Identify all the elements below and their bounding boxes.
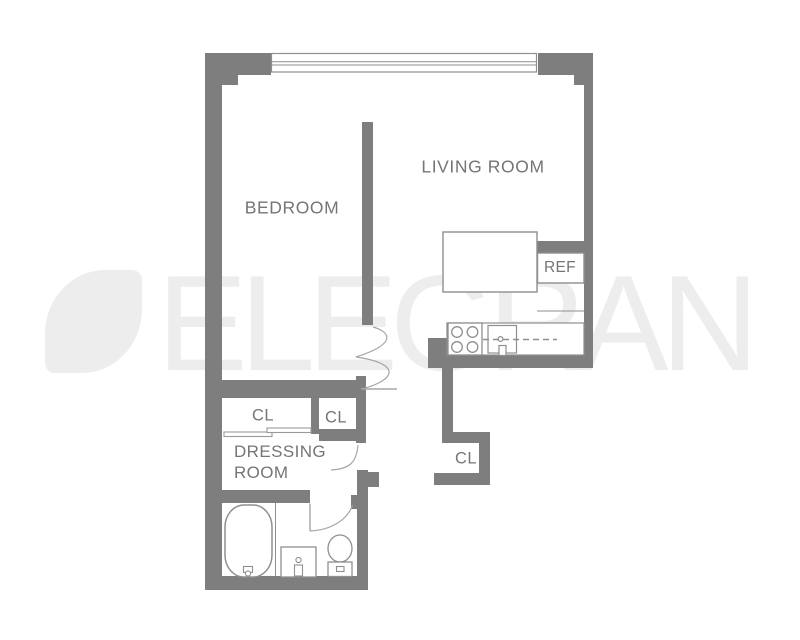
right-wall <box>584 85 593 368</box>
window <box>272 54 537 73</box>
kitchen-sink-icon <box>488 326 517 356</box>
left-wall <box>205 53 222 590</box>
top-right-step-wall <box>574 75 593 85</box>
closet-right-bottom-wall <box>319 429 366 441</box>
kitchen-island-counter <box>443 232 537 292</box>
bathroom-door-arc <box>310 505 353 531</box>
dressing-room-door-arc <box>331 445 358 470</box>
closet-left-label: CL <box>252 407 274 426</box>
sliding-door-panel-left <box>224 432 272 437</box>
bathroom-top-wall <box>218 490 310 503</box>
closet-right-label: CL <box>325 409 347 428</box>
wall-above-refrigerator <box>537 241 584 253</box>
foyer-wall-stub <box>365 472 379 487</box>
kitchen-left-wall-stub <box>428 338 448 357</box>
top-left-step-wall <box>221 75 238 85</box>
floorplan-canvas: ELEGRAN <box>0 0 800 640</box>
bedroom-living-partition-wall <box>362 122 373 325</box>
closet-hall-label: CL <box>455 450 477 469</box>
floorplan-drawing <box>0 0 800 640</box>
refrigerator-label: REF <box>544 259 576 277</box>
closet-divider-wall <box>311 398 319 434</box>
bedroom-label: BEDROOM <box>245 198 340 219</box>
hall-wall <box>442 362 453 443</box>
hall-closet-bottom-wall <box>434 473 490 485</box>
closet-sliding-doors <box>224 428 311 437</box>
bedroom-bottom-wall <box>219 380 356 398</box>
top-right-corner-wall <box>538 53 593 75</box>
top-left-corner-wall <box>221 53 271 75</box>
toilet-icon <box>328 535 352 577</box>
bedroom-double-door-arc-upper <box>356 327 387 357</box>
sliding-door-panel-right <box>267 428 311 433</box>
bathroom-sink-icon <box>281 547 316 577</box>
living-room-label: LIVING ROOM <box>421 157 544 178</box>
bathtub-icon <box>225 505 272 577</box>
bottom-wall <box>205 576 368 590</box>
stove-icon <box>448 323 482 355</box>
bathroom <box>225 503 352 577</box>
dressing-room-label: DRESSING ROOM <box>234 442 326 483</box>
